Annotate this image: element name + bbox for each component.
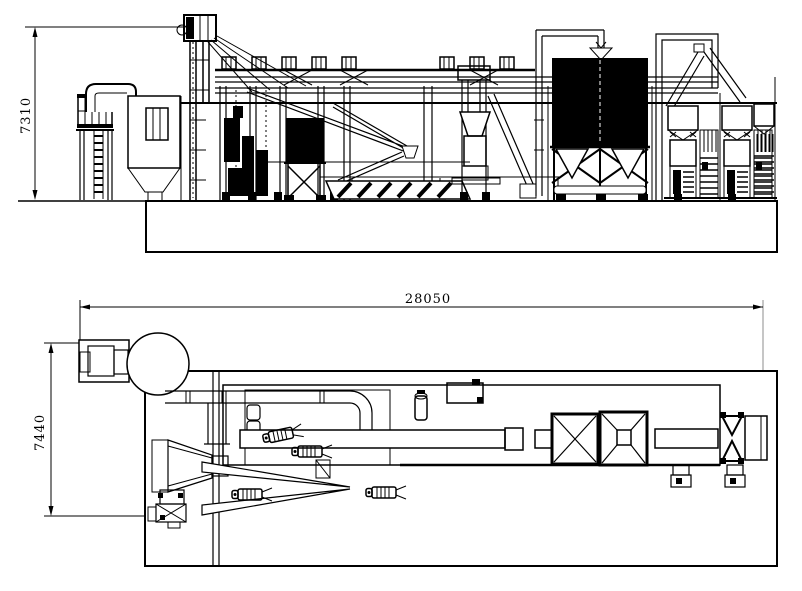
fan-unit [79,333,189,395]
base-platform [146,201,777,252]
silo-tower-1 [664,106,722,200]
weigh-tower [452,66,536,200]
fan-scroll-circle [127,333,189,395]
baghouse-ladder [94,131,103,199]
inclined-conveyor [326,181,470,199]
plan-length-label: 28050 [405,292,451,307]
drawing-canvas: 7310 [0,0,802,591]
filter-box [548,58,652,200]
plan-width-label: 7440 [33,414,48,451]
plan-view: 28050 7440 [33,292,777,566]
mixer-bin [284,118,326,201]
elevation-height-label: 7310 [19,97,34,134]
elevation-view: 7310 [18,15,777,252]
cad-drawing: 7310 [0,0,802,591]
